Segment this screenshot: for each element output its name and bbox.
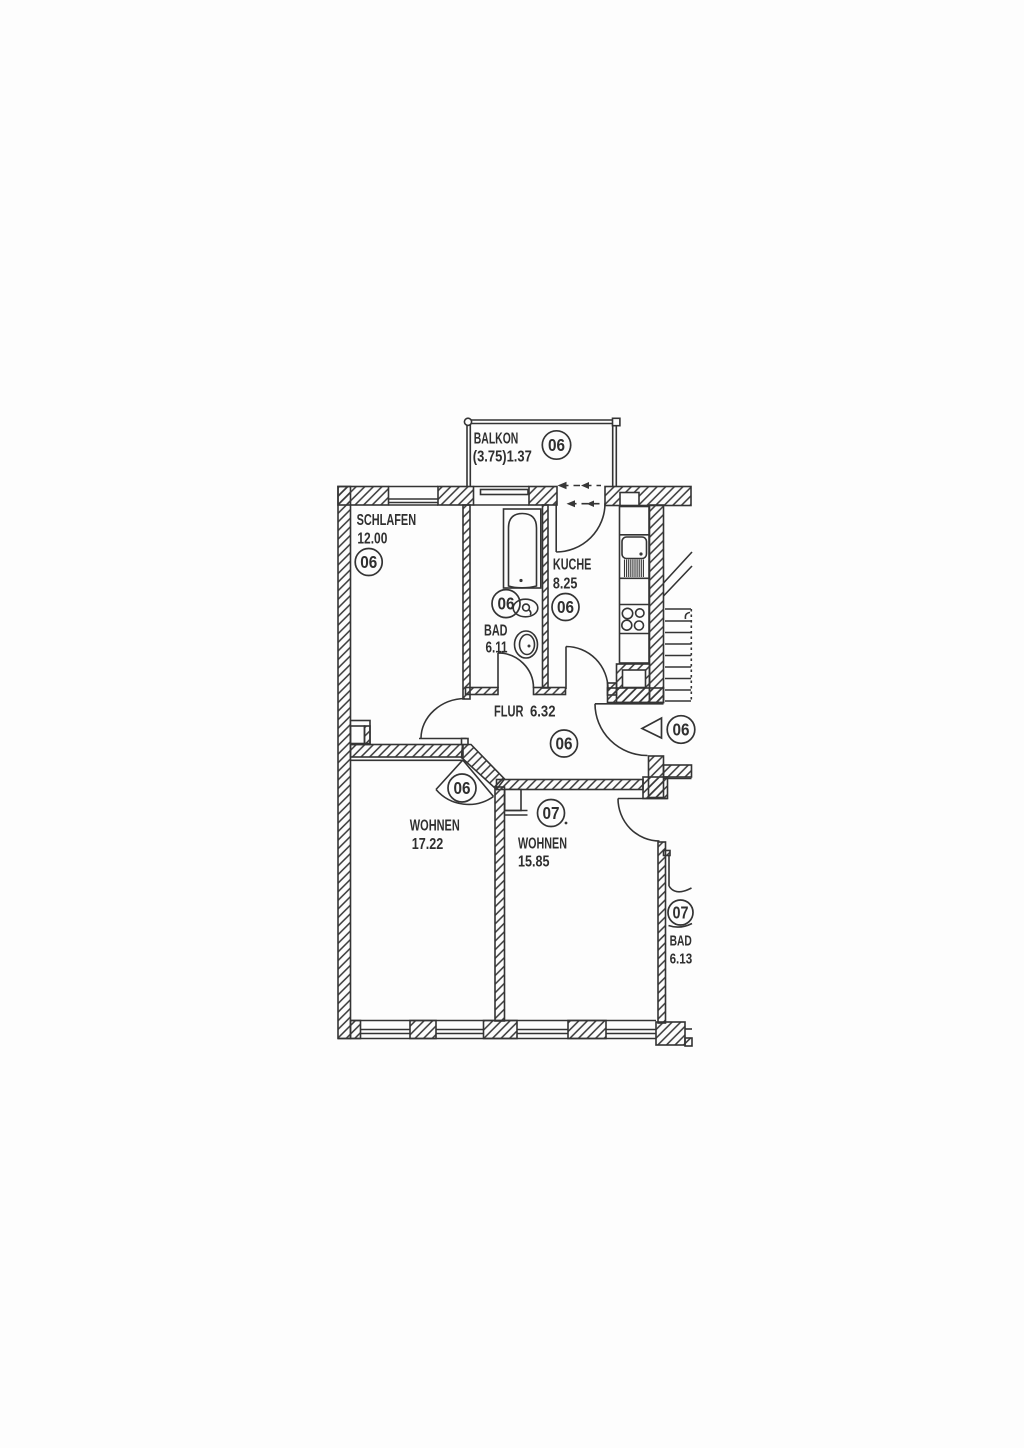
svg-text:6.11: 6.11 <box>486 640 508 657</box>
svg-text:06: 06 <box>557 597 574 617</box>
svg-text:FLUR: FLUR <box>494 704 524 721</box>
svg-text:06: 06 <box>673 720 690 740</box>
svg-text:06: 06 <box>454 778 471 798</box>
svg-text:SCHLAFEN: SCHLAFEN <box>357 512 417 529</box>
svg-text:BAD: BAD <box>484 623 508 640</box>
svg-text:06: 06 <box>548 435 565 455</box>
svg-text:07: 07 <box>543 803 560 823</box>
svg-text:6.13: 6.13 <box>670 951 693 968</box>
svg-text:17.22: 17.22 <box>412 836 444 853</box>
svg-text:15.85: 15.85 <box>518 854 550 871</box>
svg-text:(3.75)1.37: (3.75)1.37 <box>473 449 532 466</box>
svg-text:07: 07 <box>673 903 689 923</box>
svg-text:8.25: 8.25 <box>553 576 578 593</box>
svg-text:06: 06 <box>360 552 377 572</box>
svg-text:WOHNEN: WOHNEN <box>410 818 460 835</box>
svg-text:WOHNEN: WOHNEN <box>518 836 567 853</box>
svg-text:KUCHE: KUCHE <box>553 557 592 574</box>
svg-text:6.32: 6.32 <box>530 704 556 721</box>
svg-text:06: 06 <box>556 734 573 754</box>
svg-text:BAD: BAD <box>670 933 692 950</box>
svg-text:12.00: 12.00 <box>357 531 387 548</box>
svg-text:BALKON: BALKON <box>474 431 519 448</box>
svg-text:06: 06 <box>498 594 515 614</box>
